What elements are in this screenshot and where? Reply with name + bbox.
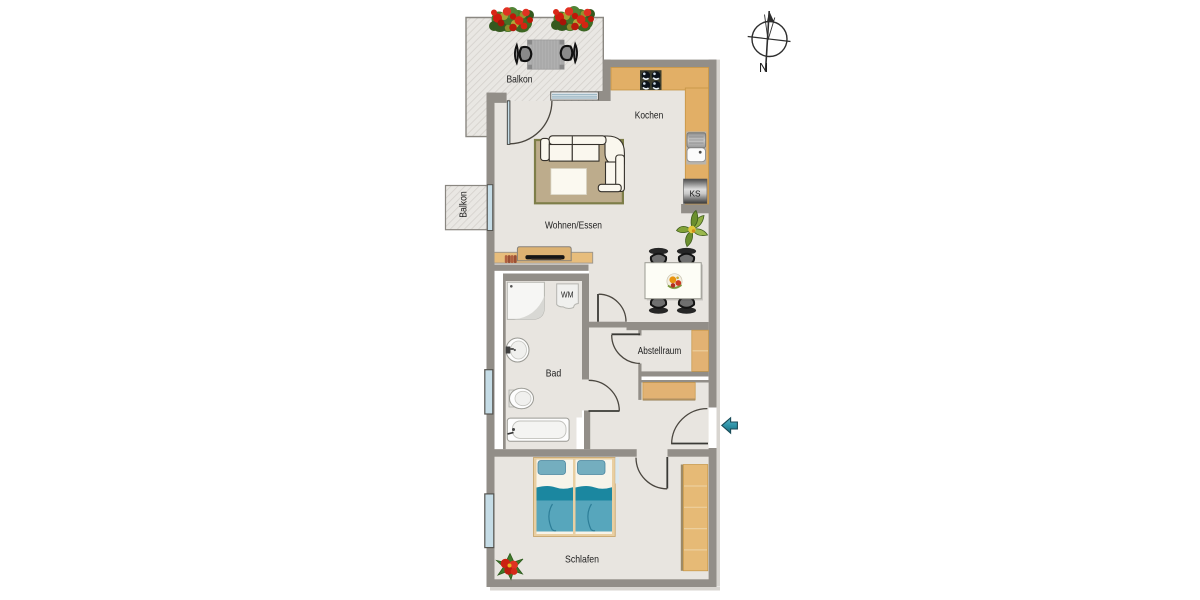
svg-text:N: N [759, 61, 768, 75]
svg-text:Bad: Bad [546, 368, 562, 380]
svg-text:Wohnen/Essen: Wohnen/Essen [545, 220, 602, 232]
svg-text:KS: KS [690, 189, 701, 199]
svg-text:Balkon: Balkon [459, 191, 470, 218]
svg-text:Abstellraum: Abstellraum [638, 346, 682, 357]
svg-text:Balkon: Balkon [507, 74, 533, 86]
svg-text:WM: WM [561, 291, 574, 300]
svg-text:Schlafen: Schlafen [565, 553, 599, 565]
svg-text:Kochen: Kochen [635, 109, 664, 121]
